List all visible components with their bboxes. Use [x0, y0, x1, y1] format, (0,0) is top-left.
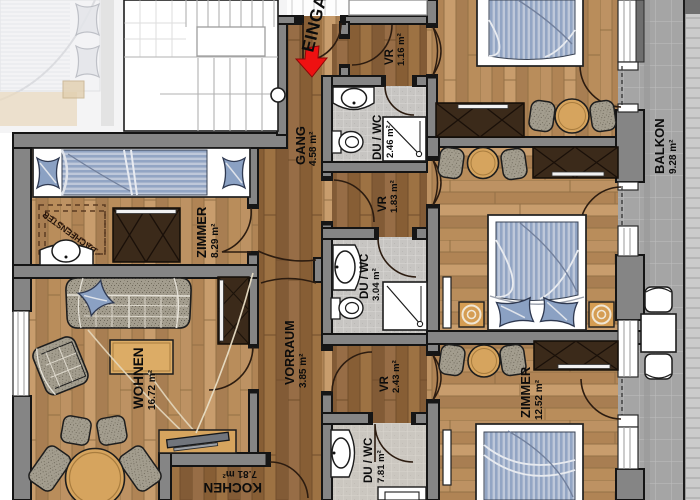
- svg-text:ZIMMER: ZIMMER: [194, 206, 209, 258]
- svg-text:KOCHEN: KOCHEN: [203, 480, 262, 495]
- svg-text:WOHNEN: WOHNEN: [131, 348, 146, 410]
- svg-text:16.72 m²: 16.72 m²: [147, 369, 158, 410]
- svg-text:GANG: GANG: [293, 126, 308, 165]
- svg-text:1.83 m²: 1.83 m²: [389, 180, 400, 213]
- svg-text:3.04 m²: 3.04 m²: [371, 268, 382, 301]
- svg-text:VR: VR: [377, 195, 389, 212]
- svg-text:3.85 m²: 3.85 m²: [298, 353, 309, 388]
- svg-text:8.29 m²: 8.29 m²: [210, 223, 221, 258]
- svg-text:VORRAUM: VORRAUM: [283, 320, 297, 385]
- svg-text:9.28 m²: 9.28 m²: [668, 139, 679, 174]
- svg-text:DU / WC: DU / WC: [372, 115, 384, 160]
- svg-text:DU / WC: DU / WC: [359, 254, 371, 299]
- svg-text:VR: VR: [379, 375, 391, 392]
- svg-text:12.52 m²: 12.52 m²: [534, 379, 545, 420]
- svg-text:VR: VR: [384, 48, 396, 65]
- svg-text:ZIMMER: ZIMMER: [518, 366, 533, 418]
- svg-text:7.81 m²: 7.81 m²: [376, 450, 387, 483]
- svg-text:2.43 m²: 2.43 m²: [391, 360, 402, 393]
- svg-text:2.46 m²: 2.46 m²: [385, 125, 396, 158]
- svg-text:7.81 m²: 7.81 m²: [222, 468, 257, 479]
- svg-text:BALKON: BALKON: [652, 118, 667, 174]
- svg-text:1.16 m²: 1.16 m²: [396, 33, 407, 66]
- svg-text:4.58 m²: 4.58 m²: [308, 131, 319, 166]
- svg-text:DU / WC: DU / WC: [363, 438, 375, 483]
